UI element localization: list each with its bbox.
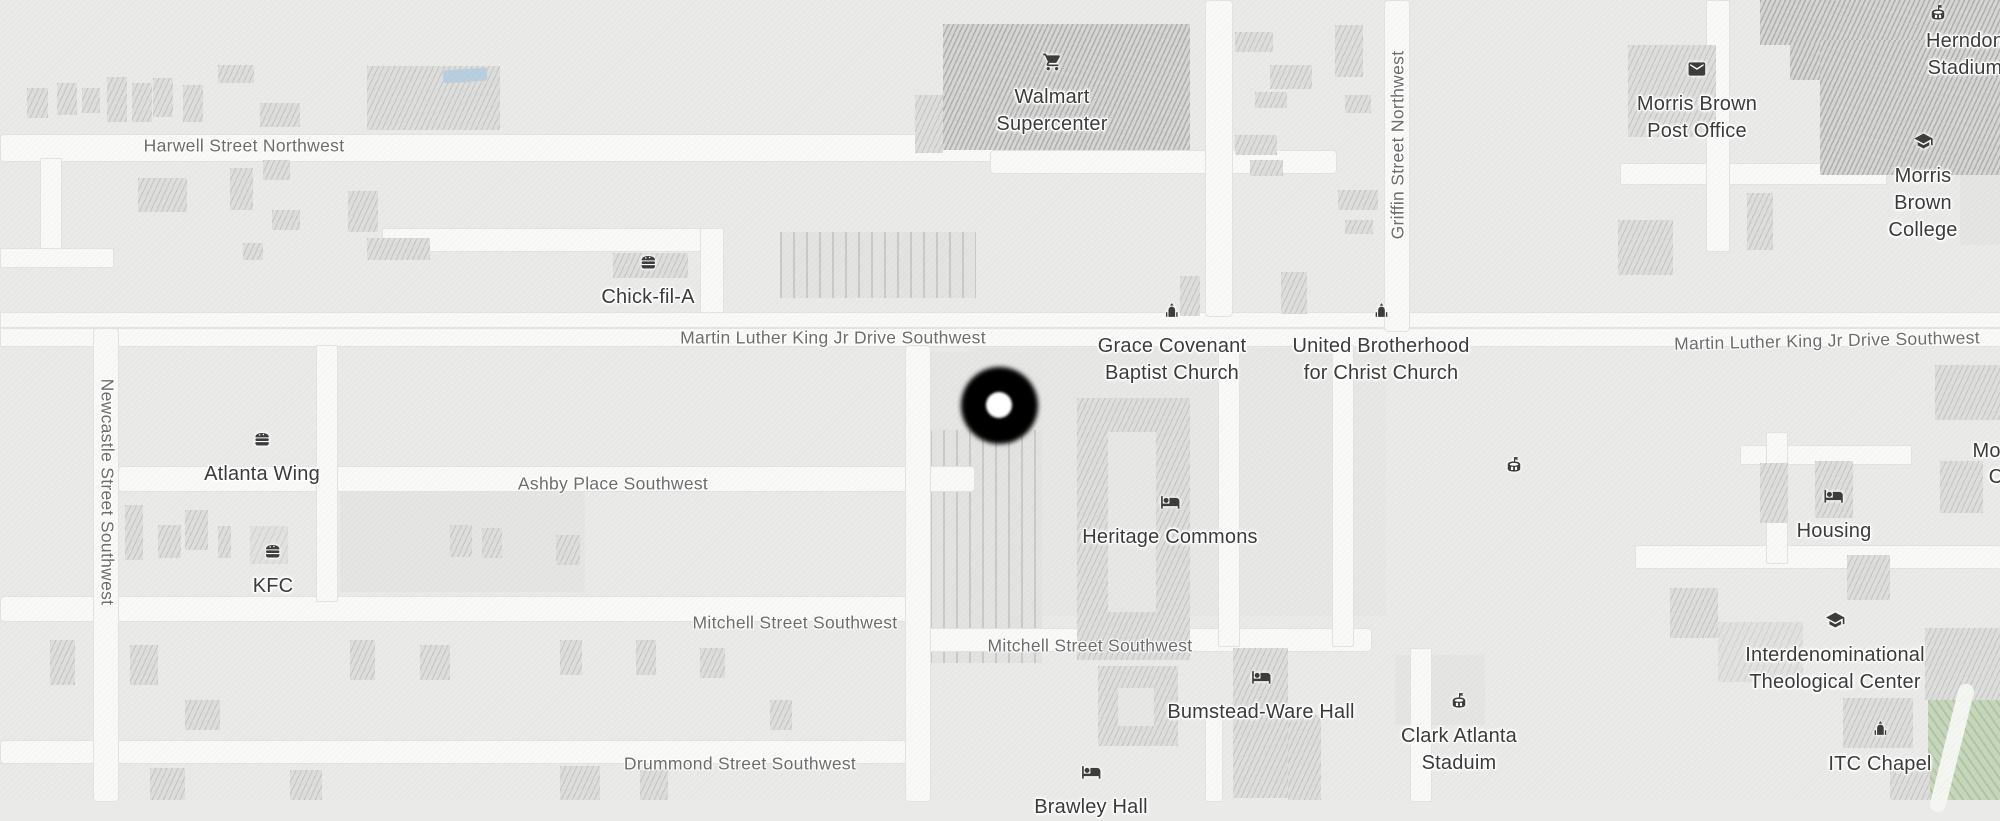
poi-itc-chapel[interactable]: ITC Chapel (1828, 719, 1931, 778)
building (82, 88, 100, 113)
herndon-stadium-icon-wrap[interactable] (1928, 3, 1948, 28)
poi-label: Herndon Stadium (1926, 28, 2000, 82)
building (272, 210, 300, 230)
building (1935, 365, 2000, 420)
map-canvas[interactable]: { "map": { "colors": { "background": "#e… (0, 0, 2000, 800)
church-icon (1162, 301, 1182, 326)
stadium-icon (1504, 455, 1524, 480)
poi-label: ITC Chapel (1828, 751, 1931, 778)
poi-label: Clark Atlanta Staduim (1401, 723, 1517, 777)
poi-label: Heritage Commons (1082, 524, 1258, 551)
poi-label: Housing (1797, 518, 1872, 545)
bed-icon (1081, 762, 1101, 787)
building (1335, 25, 1363, 77)
building (450, 525, 472, 557)
road-housing (1635, 545, 2000, 569)
building (482, 528, 502, 558)
building (218, 526, 231, 558)
building (700, 648, 725, 678)
parking-lot (780, 232, 976, 298)
building (1345, 95, 1371, 113)
building (1760, 0, 1820, 45)
poi-label: Morris Brown College (1885, 163, 1962, 244)
building (1760, 463, 1788, 523)
building (218, 65, 254, 83)
building (243, 243, 263, 260)
church-icon (1870, 719, 1890, 744)
stadium-icon (1449, 691, 1469, 716)
envelope-icon (1687, 59, 1707, 84)
building (260, 103, 300, 127)
building (348, 191, 378, 232)
bed-icon (1251, 667, 1271, 692)
building (350, 640, 375, 680)
poi-morris-brown-post-office[interactable]: Morris Brown Post Office (1637, 59, 1757, 145)
building (158, 525, 181, 558)
building (560, 766, 600, 800)
building (367, 238, 430, 260)
building (150, 768, 185, 800)
building (50, 640, 75, 685)
building (556, 535, 580, 565)
building (636, 640, 656, 675)
street-label-mitchell-east: Mitchell Street Southwest (988, 636, 1193, 657)
fast-food-icon (263, 541, 283, 566)
building (560, 640, 582, 675)
courtyard (1118, 688, 1154, 726)
building (1235, 32, 1273, 52)
building (1270, 65, 1312, 89)
clark-stadium-standalone-icon-wrap[interactable] (1504, 455, 1524, 480)
poi-label: Mor (1972, 438, 2000, 465)
building (183, 85, 203, 122)
street-label-harwell: Harwell Street Northwest (144, 136, 345, 157)
building (640, 770, 668, 800)
road-chickfila (382, 228, 714, 252)
building (1288, 715, 1321, 800)
poi-edge-partial[interactable]: C (1989, 464, 2000, 491)
fast-food-icon (252, 429, 272, 454)
poi-label: C (1989, 464, 2000, 491)
poi-brawley-hall[interactable]: Brawley Hall (1034, 762, 1148, 821)
graduation-cap-icon (1825, 610, 1845, 635)
road-loop-horiz (0, 248, 114, 268)
road-walmart-east (1205, 0, 1233, 317)
church-icon (1371, 301, 1391, 326)
building (230, 168, 253, 210)
poi-grace-covenant-baptist-church[interactable]: Grace Covenant Baptist Church (1098, 301, 1246, 387)
poi-chick-fil-a[interactable]: Chick-fil-A (601, 252, 694, 311)
poi-label: Morris Brown Post Office (1637, 91, 1757, 145)
poi-label: United Brotherhood for Christ Church (1292, 333, 1469, 387)
building (1618, 220, 1673, 275)
street-label-mitchell-west: Mitchell Street Southwest (693, 613, 898, 634)
building (138, 178, 187, 212)
building (185, 510, 208, 550)
building (153, 78, 173, 117)
building (1345, 220, 1373, 234)
building (1940, 461, 1983, 513)
poi-interdenominational-theological-center[interactable]: Interdenominational Theological Center (1745, 610, 1924, 696)
stadium-icon (1928, 3, 1948, 28)
fast-food-icon (638, 252, 658, 277)
street-label-griffin: Griffin Street Northwest (1388, 51, 1409, 240)
road-bumstead-vert (1205, 715, 1223, 802)
poi-housing[interactable]: Housing (1797, 486, 1872, 545)
poi-walmart-supercenter[interactable]: Walmart Supercenter (996, 52, 1107, 138)
poi-label: Interdenominational Theological Center (1745, 642, 1924, 696)
building (770, 700, 792, 730)
poi-label: Atlanta Wing (204, 461, 320, 488)
location-marker[interactable] (961, 367, 1038, 444)
street-label-drummond: Drummond Street Southwest (624, 754, 856, 775)
building (263, 160, 290, 180)
building (290, 770, 322, 800)
building (1250, 160, 1283, 176)
building (27, 88, 48, 118)
poi-morris-brown-college[interactable]: Morris Brown College (1885, 131, 1962, 244)
building (57, 83, 77, 115)
building (107, 77, 127, 122)
building (132, 83, 152, 122)
street-label-ashby: Ashby Place Southwest (518, 474, 708, 495)
building (185, 700, 220, 730)
building (1747, 193, 1773, 250)
building (1670, 588, 1718, 638)
street-label-newcastle: Newcastle Street Southwest (97, 379, 118, 606)
poi-label: Grace Covenant Baptist Church (1098, 333, 1246, 387)
bed-icon (1824, 486, 1844, 511)
bed-icon (1160, 492, 1180, 517)
building (125, 505, 143, 560)
poi-label: Walmart Supercenter (996, 84, 1107, 138)
road-harwell-east (990, 150, 1337, 174)
shopping-cart-icon (1042, 52, 1062, 77)
building (1847, 555, 1890, 600)
poi-atlanta-wing[interactable]: Atlanta Wing (204, 429, 320, 488)
poi-kfc[interactable]: KFC (253, 541, 294, 600)
road-mid-vertical (905, 345, 931, 802)
road-church-vert-2 (1332, 345, 1354, 647)
poi-heritage-commons[interactable]: Heritage Commons (1082, 492, 1258, 551)
building (1338, 190, 1378, 210)
poi-bumstead-ware-hall[interactable]: Bumstead-Ware Hall (1167, 667, 1354, 726)
building (1235, 135, 1277, 155)
building (420, 645, 450, 680)
road-centerline (0, 327, 2000, 329)
poi-edge-partial[interactable]: Mor (1972, 438, 2000, 465)
poi-clark-atlanta-stadium[interactable]: Clark Atlanta Staduim (1401, 691, 1517, 777)
building (1255, 92, 1287, 108)
street-label-mlk-west: Martin Luther King Jr Drive Southwest (680, 328, 986, 349)
poi-label: Brawley Hall (1034, 794, 1148, 821)
poi-label: KFC (253, 573, 294, 600)
poi-label: Chick-fil-A (601, 284, 694, 311)
building (130, 645, 158, 685)
graduation-cap-icon (1913, 131, 1933, 156)
poi-united-brotherhood-for-christ-church[interactable]: United Brotherhood for Christ Church (1292, 301, 1469, 387)
poi-herndon-stadium[interactable]: Herndon Stadium (1926, 28, 2000, 82)
building (915, 95, 943, 153)
poi-label: Bumstead-Ware Hall (1167, 699, 1354, 726)
